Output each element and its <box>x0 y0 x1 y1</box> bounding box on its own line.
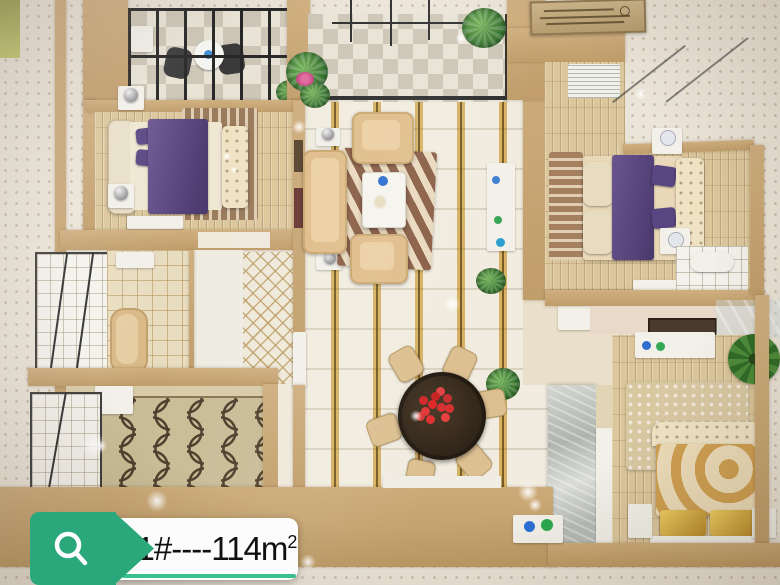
lamp <box>322 128 334 140</box>
glare <box>528 498 542 512</box>
hanging-rod <box>332 22 472 24</box>
decor-green <box>656 342 665 351</box>
bed2-pillow <box>583 210 613 254</box>
decor-blue <box>496 238 505 247</box>
bathtub-inner <box>116 314 138 364</box>
bed2-pillow-purple <box>651 207 677 229</box>
wall-art <box>294 140 303 172</box>
plaque-text-line <box>546 21 624 25</box>
corridor-diamond-floor <box>243 252 293 386</box>
nightstand <box>628 504 652 538</box>
plaque-text-line <box>540 15 630 19</box>
balcony-frame <box>308 96 508 100</box>
sofa-cushions <box>311 158 339 242</box>
hanging-rod <box>428 0 430 40</box>
armchair-cushion <box>360 242 394 270</box>
glare <box>635 88 647 100</box>
decor-green-ball <box>541 519 553 531</box>
dining-floor-ext <box>523 385 548 490</box>
badge-text-sup: 2 <box>287 533 296 551</box>
wall <box>755 295 769 555</box>
balcony-flowers <box>296 72 314 86</box>
glare <box>222 152 231 161</box>
shower-room-floor <box>35 252 111 374</box>
table-flowers <box>372 194 388 210</box>
decor-blue-ball <box>524 521 535 532</box>
glare <box>230 166 238 174</box>
glass-reflection-line <box>665 37 748 103</box>
glare <box>292 120 306 134</box>
wall <box>750 145 764 295</box>
red-flower-centerpiece <box>428 400 437 409</box>
glass-panel <box>716 300 780 338</box>
living-plant <box>476 268 506 294</box>
lamp <box>124 88 138 102</box>
hall-floor <box>191 250 243 370</box>
decor-green <box>494 216 502 224</box>
wall <box>83 100 95 238</box>
glare <box>455 32 467 44</box>
armchair-cushion <box>362 120 400 150</box>
bedroom1-dresser <box>127 216 183 229</box>
wall <box>293 385 305 490</box>
background-edge <box>0 0 20 58</box>
bedroom2-rug <box>549 152 583 260</box>
ensuite-tub <box>690 252 734 272</box>
door-pillar <box>596 428 612 546</box>
threshold-step <box>383 476 501 488</box>
hanging-rod <box>350 0 352 42</box>
bottom-wall-band <box>548 543 780 567</box>
bed3-gold-pillow <box>710 510 756 536</box>
balcony-railing <box>128 8 296 110</box>
ac-vent-panel <box>568 64 620 98</box>
plaque-text-line <box>544 8 614 12</box>
glare <box>444 296 460 312</box>
bed2-duvet <box>612 155 654 260</box>
bed1-duvet <box>148 119 208 214</box>
sign-plaque <box>530 0 647 36</box>
door-gap <box>198 232 270 248</box>
blue-bowl <box>378 176 388 186</box>
junction-floor2 <box>596 385 612 428</box>
decor-blue <box>492 176 500 184</box>
decor-blue <box>642 341 651 350</box>
decor-shelf <box>513 515 563 543</box>
wall-art <box>294 188 303 228</box>
search-icon <box>52 530 92 570</box>
glare <box>146 490 168 512</box>
lamp <box>114 186 128 200</box>
wall <box>189 250 194 370</box>
door-frame <box>293 332 306 388</box>
bed2-pillow-purple <box>651 164 678 187</box>
bed3-duvet-gold-swirl <box>656 444 760 516</box>
glass-lamp <box>660 130 676 146</box>
apartment-model-photo: 11#----114m2 <box>0 0 780 585</box>
glare <box>300 554 316 570</box>
bed3-headboard <box>652 422 764 446</box>
wall <box>28 368 278 386</box>
bed3-gold-pillow <box>660 510 706 536</box>
bed2-pillow <box>583 162 613 206</box>
palm-plant <box>728 334 780 384</box>
balcony-plant <box>462 8 506 48</box>
glare <box>410 410 422 422</box>
glare <box>95 440 107 452</box>
sink <box>116 252 154 268</box>
